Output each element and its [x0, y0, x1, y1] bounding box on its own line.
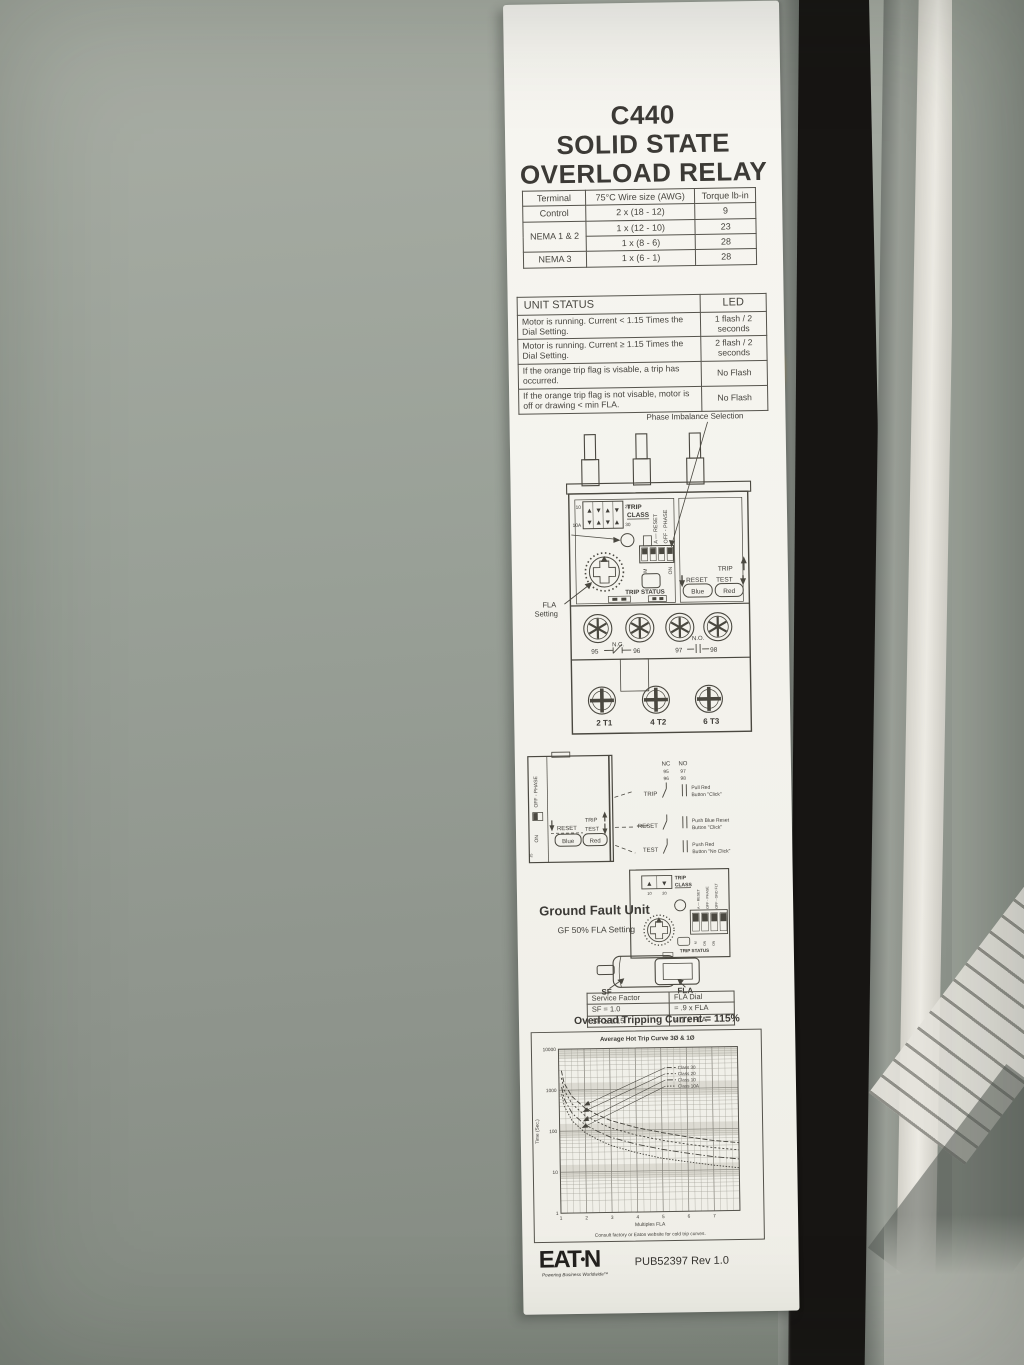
cell: 1 x (6 - 1)	[586, 250, 696, 267]
svg-text:CLASS: CLASS	[627, 512, 650, 519]
cell: Control	[523, 206, 586, 222]
gf-button	[678, 937, 690, 945]
svg-text:98: 98	[710, 647, 718, 654]
svg-text:100: 100	[549, 1129, 557, 1135]
cell: NEMA 1 & 2	[523, 221, 586, 253]
svg-text:7: 7	[713, 1213, 716, 1219]
svg-text:J5: J5	[529, 854, 533, 858]
dip-label-reset: A — RESET	[653, 513, 659, 543]
cell: NEMA 3	[523, 252, 586, 268]
pointer-lines	[614, 791, 635, 853]
gf-dip-label: OFF - PHASE	[705, 886, 709, 909]
svg-text:20: 20	[662, 891, 667, 896]
nc-label: N.C.	[612, 642, 624, 648]
svg-text:4: 4	[636, 1215, 639, 1221]
title-line-1: C440	[505, 99, 781, 132]
relay-face-diagram: Phase Imbalance Selection ▲▼▲▼ ▼▲▼▲ 10 2…	[509, 407, 784, 745]
svg-text:97: 97	[675, 647, 683, 654]
arrow-up-icon	[741, 556, 747, 563]
svg-text:TEST: TEST	[643, 848, 659, 854]
motor-nameplate	[655, 958, 699, 985]
relay-body	[569, 491, 752, 734]
svg-text:98: 98	[680, 776, 686, 782]
svg-text:Blue: Blue	[691, 588, 705, 595]
test-reset-diagram: OFF - PHASE ON J5 RESET TRIP TEST Blue R…	[520, 747, 757, 883]
reset-label: RESET	[557, 826, 577, 832]
relay-side-view	[528, 755, 614, 862]
dip-label-on: ON	[668, 566, 674, 574]
col-header: Terminal	[522, 190, 585, 206]
svg-text:RESET: RESET	[638, 824, 658, 830]
svg-text:Push Blue Reset: Push Blue Reset	[692, 818, 730, 825]
no-header: NO	[678, 761, 687, 767]
svg-text:6: 6	[688, 1214, 691, 1220]
eaton-tagline: Powering Business Worldwide™	[542, 1272, 608, 1278]
trip-status-button	[642, 574, 660, 588]
relay-instruction-label: C440 SOLID STATE OVERLOAD RELAY Terminal…	[503, 1, 800, 1315]
cell: 2 flash / 2 seconds	[701, 336, 767, 362]
svg-text:Setting: Setting	[535, 609, 558, 618]
class-30: 30	[625, 522, 631, 528]
class-10a: 10A	[573, 523, 582, 529]
photo-scene: C440 SOLID STATE OVERLOAD RELAY Terminal…	[0, 0, 1024, 1365]
svg-text:5: 5	[662, 1214, 665, 1220]
class-10: 10	[576, 505, 582, 511]
status-led	[621, 534, 634, 547]
svg-text:Class 30: Class 30	[678, 1065, 696, 1070]
terminal-posts	[566, 432, 751, 494]
bottom-right-frame	[884, 1215, 1024, 1365]
arrow-up-icon	[602, 811, 607, 817]
terminal-t3: 6 T3	[703, 717, 720, 726]
svg-text:10000: 10000	[543, 1047, 557, 1053]
svg-text:10: 10	[552, 1170, 558, 1176]
cell: 23	[695, 218, 756, 234]
col-header: LED	[700, 293, 766, 312]
dip-switch	[642, 547, 674, 560]
terminal-t2: 4 T2	[650, 718, 667, 727]
trip-status-label: TRIP STATUS	[625, 589, 665, 597]
svg-text:95: 95	[663, 769, 669, 775]
fla-dial	[585, 553, 624, 592]
svg-text:Class 20: Class 20	[678, 1071, 696, 1076]
on-label: ON	[534, 835, 540, 843]
dip-switch	[692, 913, 727, 932]
gf-led	[675, 900, 686, 911]
ground-fault-diagram: ▲ ▼ 10 20 TRIP CLASS A — RESET OFF -	[629, 867, 736, 962]
svg-text:ON: ON	[703, 940, 707, 946]
off-phase-label: OFF - PHASE	[533, 775, 540, 807]
chart-footnote: Consult factory or Eaton website for col…	[595, 1231, 706, 1239]
power-terminals	[588, 685, 722, 714]
fla-setting-label: FLA	[542, 600, 556, 609]
svg-text:TRIP: TRIP	[675, 875, 687, 881]
dip-arrows: ▼▲▼▲	[586, 519, 623, 527]
svg-text:M: M	[694, 941, 698, 944]
table-row: NEMA 3 1 x (6 - 1) 28	[523, 249, 756, 268]
y-axis-label: Time (Sec.)	[535, 1119, 541, 1144]
svg-text:Button "Click": Button "Click"	[692, 825, 723, 831]
svg-text:1000: 1000	[546, 1088, 557, 1094]
cell: No Flash	[701, 361, 767, 387]
svg-text:96: 96	[663, 776, 669, 782]
nc-header: NC	[662, 761, 671, 767]
publication-number: PUB52397 Rev 1.0	[635, 1255, 729, 1268]
unit-status-table: UNIT STATUS LED Motor is running. Curren…	[517, 293, 769, 415]
trip-flag-label: TRIP	[718, 565, 733, 572]
svg-text:2: 2	[585, 1215, 588, 1221]
svg-text:1: 1	[556, 1211, 559, 1217]
gf-dip-label: A — RESET	[696, 888, 700, 909]
svg-text:Red: Red	[723, 588, 735, 595]
trip-curve-chart: Average Hot Trip Curve 3Ø & 1Ø Time (Sec…	[529, 1027, 768, 1245]
svg-text:Pull Red: Pull Red	[691, 785, 710, 791]
cell: Motor is running. Current < 1.15 Times t…	[517, 312, 700, 340]
dip-arrow: ▲	[646, 881, 653, 888]
svg-text:Button "No Click": Button "No Click"	[692, 849, 730, 856]
svg-text:Class 10: Class 10	[678, 1077, 696, 1082]
cell: 28	[696, 234, 757, 250]
svg-text:95: 95	[591, 649, 599, 656]
arrow-down-icon	[549, 825, 554, 831]
x-axis-label: Multiples FLA	[635, 1222, 666, 1228]
gf-dial	[644, 915, 674, 945]
trip-label: TRIP	[585, 818, 598, 824]
cell: 1 x (12 - 10)	[586, 219, 696, 236]
cell: If the orange trip flag is visable, a tr…	[518, 362, 701, 390]
dip-arrows: ▲▼▲▼	[586, 507, 623, 515]
test-label: TEST	[585, 827, 600, 833]
arrow-icon	[585, 582, 593, 589]
cell: Motor is running. Current ≥ 1.15 Times t…	[518, 337, 701, 365]
wire-size-table: Terminal 75°C Wire size (AWG) Torque lb-…	[522, 187, 757, 268]
svg-text:10: 10	[647, 891, 652, 896]
eaton-logo: EAT•N	[539, 1247, 600, 1273]
cell: 1 flash / 2 seconds	[700, 311, 766, 337]
dip-arrow: ▼	[661, 881, 668, 888]
label-title: C440 SOLID STATE OVERLOAD RELAY	[505, 99, 782, 190]
cell: 2 x (18 - 12)	[586, 204, 696, 221]
svg-text:97: 97	[680, 769, 686, 775]
svg-text:Red: Red	[590, 839, 601, 845]
gf-dip-label: OFF - GND FLT	[714, 882, 718, 908]
arrow-icon	[613, 537, 620, 543]
cell: 9	[695, 203, 756, 219]
chart-title: Average Hot Trip Curve 3Ø & 1Ø	[600, 1035, 695, 1043]
trip-class-label: TRIP	[627, 504, 643, 511]
dip-label-m: M	[643, 569, 649, 573]
cell: 28	[696, 249, 757, 265]
col-header: Torque lb-in	[695, 188, 756, 204]
svg-text:TRIP: TRIP	[644, 792, 658, 798]
svg-text:1: 1	[560, 1216, 563, 1222]
title-line-3: OVERLOAD RELAY	[505, 157, 781, 190]
col-header: 75°C Wire size (AWG)	[585, 189, 695, 206]
aux-terminals	[584, 612, 732, 642]
svg-text:96: 96	[633, 648, 641, 655]
svg-text:Push Red: Push Red	[692, 842, 714, 848]
reset-label: RESET	[686, 577, 708, 584]
phase-imbalance-label: Phase Imbalance Selection	[646, 411, 743, 422]
svg-text:Button "Click": Button "Click"	[691, 792, 722, 798]
svg-text:Blue: Blue	[562, 839, 575, 845]
svg-text:ON: ON	[712, 940, 716, 946]
ground-fault-subtitle: GF 50% FLA Setting	[557, 924, 635, 935]
terminal-t1: 2 T1	[596, 718, 613, 727]
test-label: TEST	[716, 576, 733, 583]
cell: 1 x (8 - 6)	[586, 235, 696, 252]
svg-text:Class 10A: Class 10A	[678, 1083, 700, 1088]
dip-label-phase: OFF - PHASE	[663, 509, 670, 543]
svg-text:3: 3	[611, 1215, 614, 1221]
no-label: N.O.	[692, 636, 705, 642]
no-contact-symbol	[687, 644, 709, 653]
